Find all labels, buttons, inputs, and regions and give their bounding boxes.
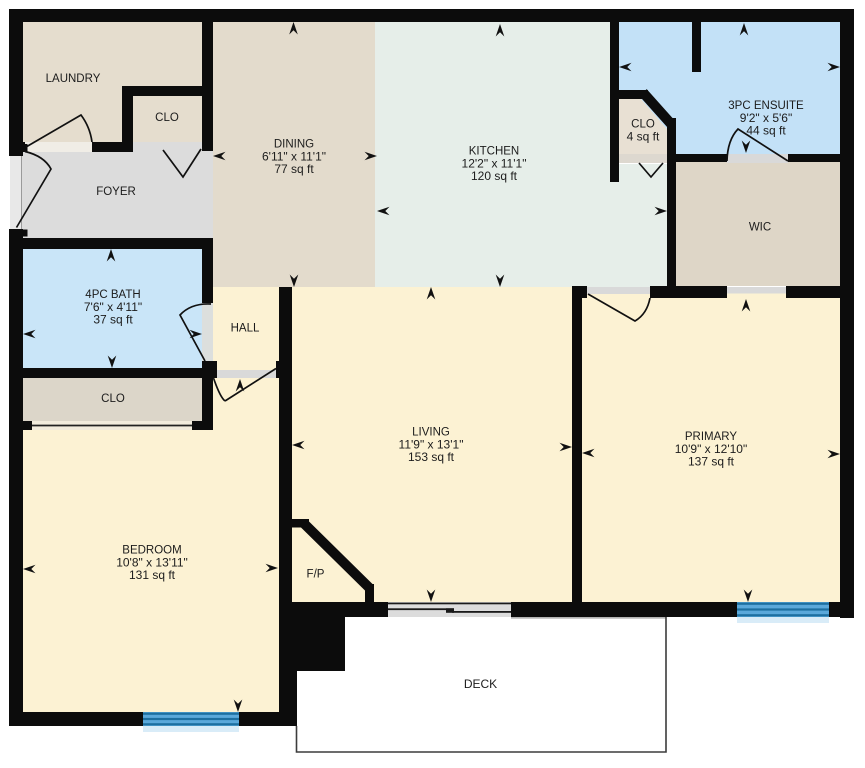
- svg-text:120 sq ft: 120 sq ft: [471, 169, 518, 183]
- svg-text:LAUNDRY: LAUNDRY: [46, 73, 101, 85]
- svg-text:44 sq ft: 44 sq ft: [746, 123, 786, 137]
- svg-text:DECK: DECK: [464, 677, 497, 691]
- svg-text:131 sq ft: 131 sq ft: [129, 568, 176, 582]
- svg-text:DINING: DINING: [274, 139, 314, 151]
- svg-text:CLO: CLO: [155, 112, 179, 124]
- svg-text:BEDROOM: BEDROOM: [122, 545, 181, 557]
- svg-text:WIC: WIC: [749, 222, 771, 234]
- svg-text:CLO: CLO: [631, 119, 655, 131]
- svg-text:37 sq ft: 37 sq ft: [93, 312, 133, 326]
- svg-text:LIVING: LIVING: [412, 427, 450, 439]
- svg-text:77 sq ft: 77 sq ft: [274, 162, 314, 176]
- svg-text:F/P: F/P: [307, 569, 325, 581]
- svg-text:CLO: CLO: [101, 393, 125, 405]
- svg-text:137 sq ft: 137 sq ft: [688, 454, 735, 468]
- svg-text:HALL: HALL: [231, 323, 260, 335]
- svg-text:153 sq ft: 153 sq ft: [408, 450, 455, 464]
- svg-text:KITCHEN: KITCHEN: [469, 146, 519, 158]
- svg-text:FOYER: FOYER: [96, 186, 136, 198]
- svg-text:4 sq ft: 4 sq ft: [627, 130, 660, 144]
- svg-text:4PC BATH: 4PC BATH: [85, 289, 140, 301]
- svg-text:3PC ENSUITE: 3PC ENSUITE: [728, 100, 804, 112]
- svg-text:PRIMARY: PRIMARY: [685, 431, 738, 443]
